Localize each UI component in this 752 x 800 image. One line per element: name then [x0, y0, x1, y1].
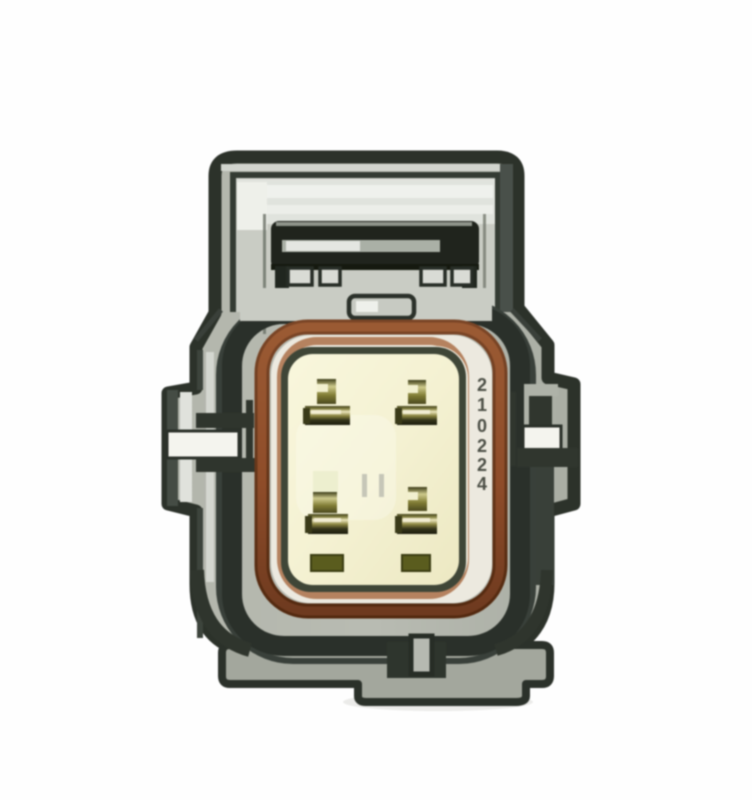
svg-text:2: 2: [477, 455, 487, 475]
svg-text:2: 2: [477, 375, 487, 395]
svg-text:0: 0: [477, 416, 487, 436]
svg-text:1: 1: [477, 395, 487, 415]
svg-text:4: 4: [477, 474, 487, 494]
svg-text:2: 2: [477, 436, 487, 456]
